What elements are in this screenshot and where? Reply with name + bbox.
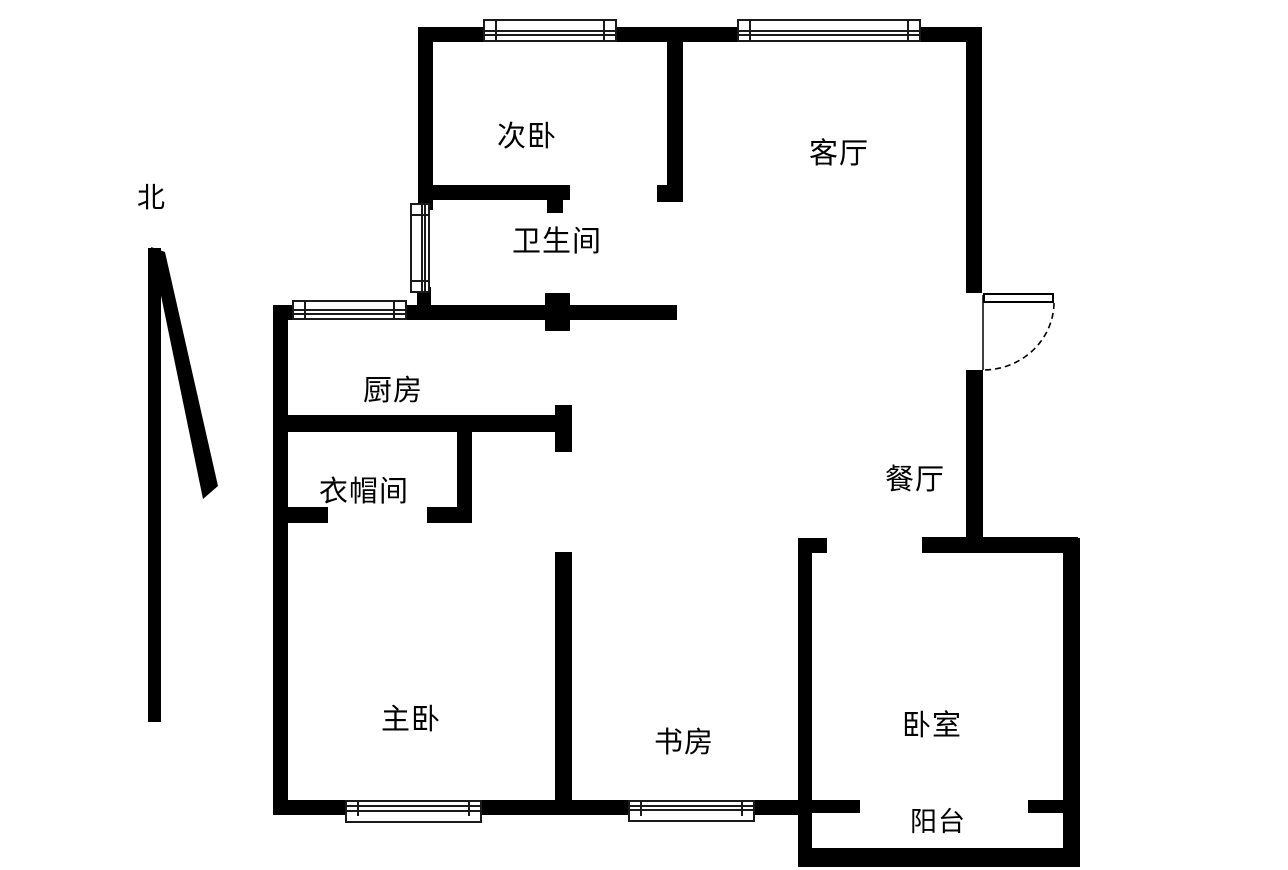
window-bathroom [410, 203, 430, 293]
window-living-room [737, 19, 921, 42]
entry-door-leaf [983, 293, 1054, 303]
window-study [628, 800, 755, 822]
window-kitchen [292, 300, 407, 320]
window-second-bedroom [483, 19, 617, 42]
plan-linework [0, 0, 1288, 870]
entry-door-swing-arc [984, 303, 1054, 370]
north-arrow-head [151, 247, 218, 499]
floor-plan: 北 次卧 客厅 卫生间 厨房 衣帽间 餐厅 主卧 书房 卧室 阳台 [0, 0, 1288, 870]
window-master-bedroom [345, 800, 482, 823]
